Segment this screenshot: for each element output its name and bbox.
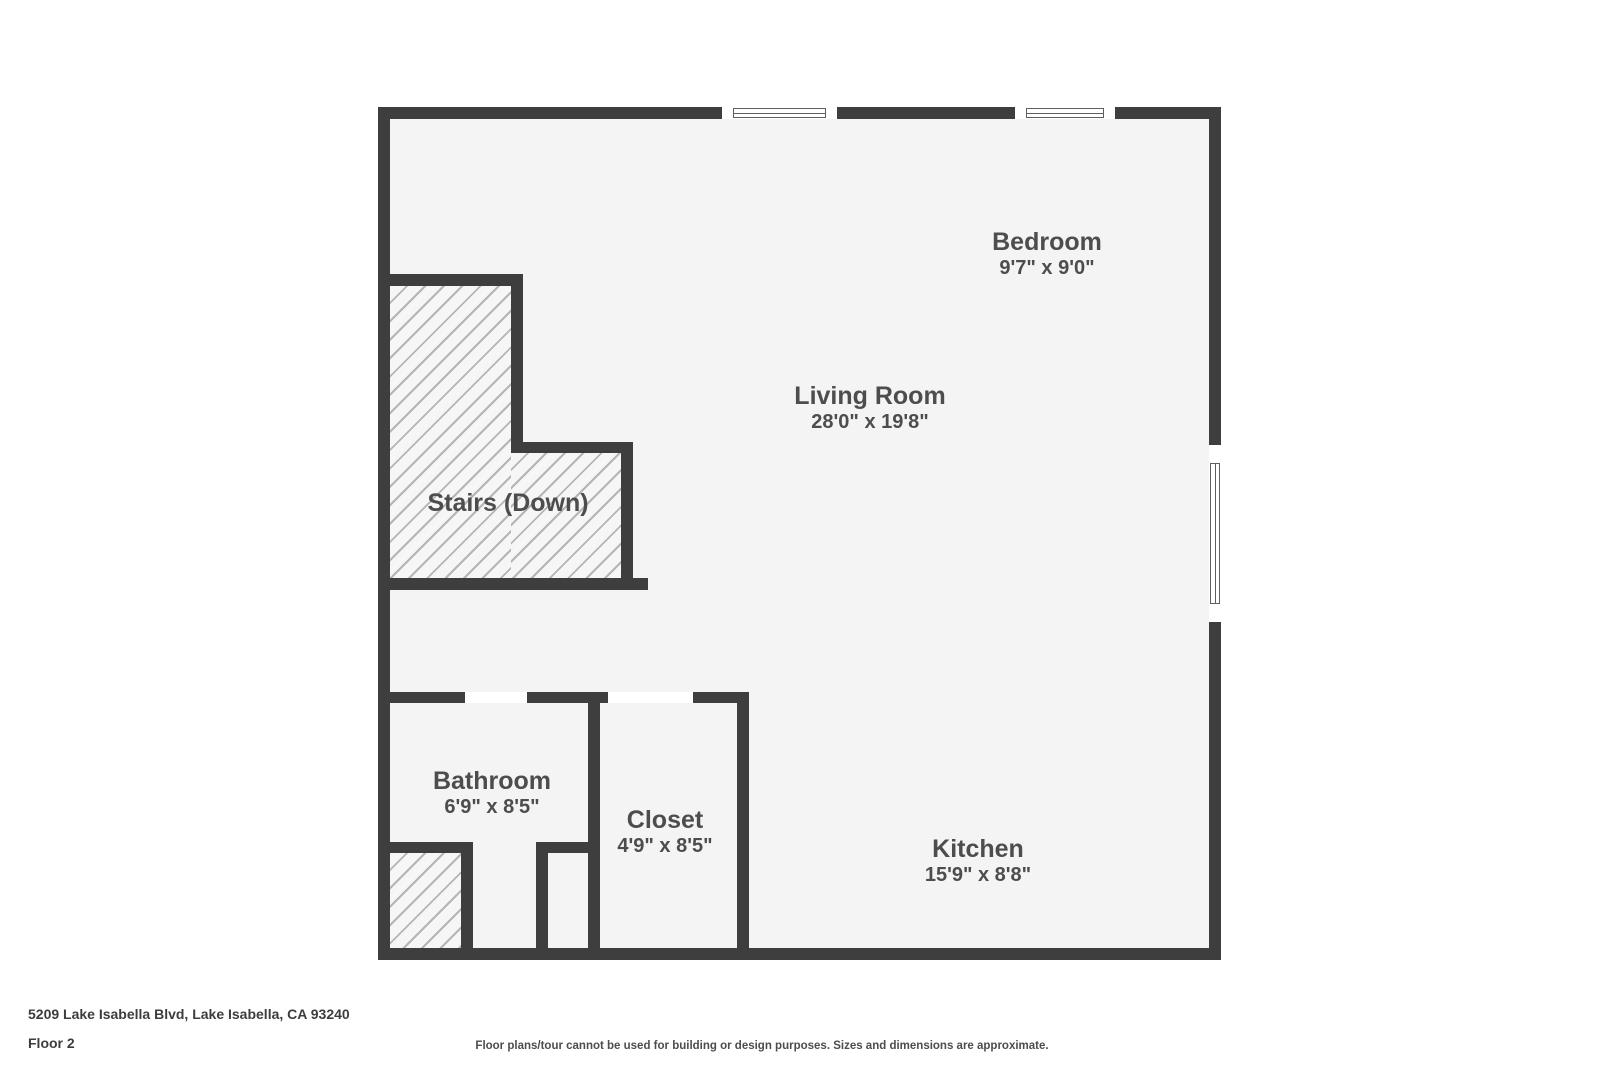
room-label-stairs: Stairs (Down): [427, 490, 588, 516]
closet-door-opening: [608, 692, 693, 703]
window-mullion: [734, 113, 825, 114]
room-label-kitchen: Kitchen 15'9" x 8'8": [925, 836, 1031, 888]
room-name: Kitchen: [932, 836, 1024, 862]
disclaimer-text: Floor plans/tour cannot be used for buil…: [475, 1040, 1048, 1052]
floor-number-label: Floor 2: [28, 1035, 75, 1051]
wall-stairs-top: [390, 274, 523, 286]
void-hatch-area: [390, 853, 461, 948]
wall-void-right: [461, 842, 473, 948]
room-label-living-room: Living Room 28'0" x 19'8": [794, 383, 945, 435]
room-dimensions: 15'9" x 8'8": [925, 862, 1031, 888]
wall-stairs-bottom: [390, 578, 648, 590]
room-dimensions: 28'0" x 19'8": [811, 409, 928, 435]
wall-closet-right: [737, 692, 749, 948]
room-name: Closet: [627, 807, 703, 833]
window-mullion: [1215, 464, 1216, 603]
room-dimensions: 6'9" x 8'5": [444, 794, 539, 820]
floorplan-canvas: Bedroom 9'7" x 9'0" Living Room 28'0" x …: [378, 107, 1221, 960]
window-frame: [1026, 108, 1104, 118]
window-top-right: [1015, 107, 1115, 119]
room-name: Bedroom: [992, 229, 1102, 255]
wall-bathroom-closet-divider: [588, 692, 600, 948]
room-dimensions: 4'9" x 8'5": [617, 833, 712, 859]
wall-bathroom-top-left: [390, 692, 465, 703]
window-frame: [733, 108, 826, 118]
room-name: Living Room: [794, 383, 945, 409]
room-label-bathroom: Bathroom 6'9" x 8'5": [433, 768, 551, 820]
window-top-left: [722, 107, 837, 119]
wall-stairs-step: [511, 442, 633, 453]
room-name: Bathroom: [433, 768, 551, 794]
room-dimensions: 9'7" x 9'0": [999, 255, 1094, 281]
room-name: Stairs (Down): [427, 490, 588, 516]
room-label-closet: Closet 4'9" x 8'5": [617, 807, 712, 859]
wall-stairs-right-upper: [511, 274, 523, 442]
window-right-wall: [1209, 445, 1221, 622]
wall-niche-left: [536, 842, 548, 948]
stairs-hatch-area-upper: [390, 286, 511, 578]
property-address: 5209 Lake Isabella Blvd, Lake Isabella, …: [28, 1006, 350, 1022]
wall-stairs-right-lower: [621, 442, 633, 578]
window-mullion: [1027, 113, 1103, 114]
window-frame: [1210, 463, 1220, 604]
floorplan-page: Bedroom 9'7" x 9'0" Living Room 28'0" x …: [0, 0, 1600, 1067]
room-label-bedroom: Bedroom 9'7" x 9'0": [992, 229, 1102, 281]
bathroom-door-opening: [465, 692, 527, 703]
